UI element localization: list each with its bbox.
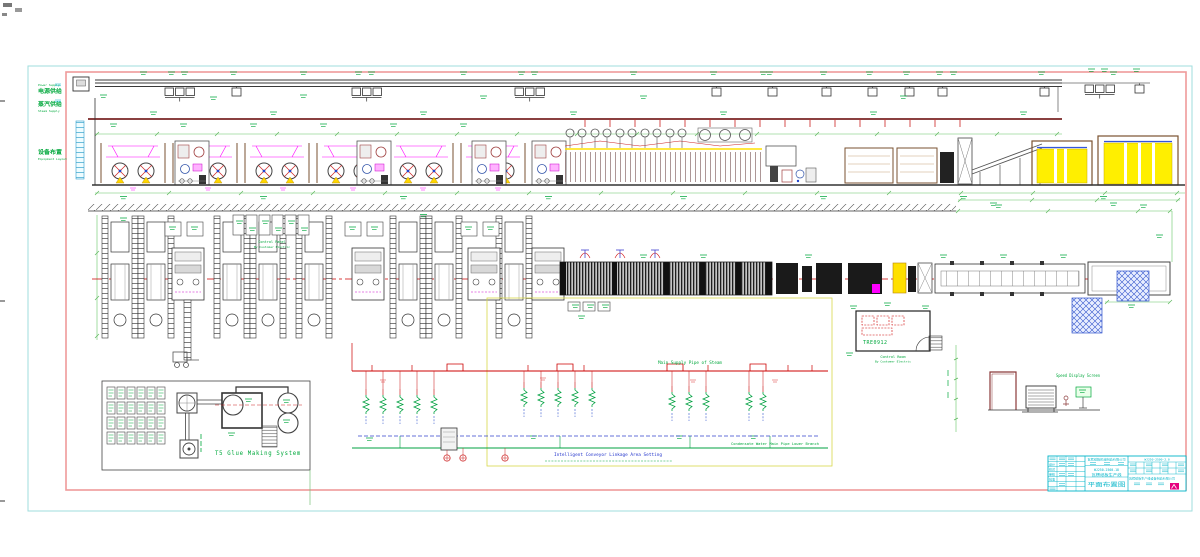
product-name: 瓦楞纸板生产线 — [1092, 472, 1123, 477]
check-label: 校对 — [1049, 467, 1055, 472]
control-panel-caption-2: By Customer Electric — [254, 245, 290, 249]
elevation-bridge — [565, 128, 762, 182]
control-room: TRE0912 Control Room By Customer Electri… — [846, 303, 942, 364]
condensate-main-label: Condensate Water Main Pipe Lower Branch — [731, 441, 819, 446]
speed-screen-machine — [1022, 386, 1058, 412]
footer-company: 瓦楞纸板生产线设备制造有限公司 — [1129, 477, 1175, 481]
sheet-title: 平面布置图 — [1088, 481, 1127, 489]
control-room-caption: Control Room — [880, 355, 905, 359]
model-number: WJ250-2500-18 — [1094, 468, 1119, 472]
sheet-fold-marks — [0, 3, 22, 502]
glue-system-title: T5 Glue Making System — [215, 449, 301, 457]
drawing-number: WJ250-2500-2.0 — [1144, 458, 1169, 462]
steam-supply-label-cn: 蒸汽供给 — [37, 100, 63, 108]
control-panel-caption: Control Panel — [258, 240, 285, 244]
stairs — [262, 426, 277, 447]
elevation-dimensions — [92, 185, 1185, 205]
operator-figure — [1063, 396, 1069, 406]
plan-roll-stands — [102, 216, 564, 360]
title-block: 设计 校对 审核 批准 瓦楞纸箱机械制造有限公司 WJ250-2500-18 瓦… — [1048, 456, 1186, 491]
elevation-dry-end — [766, 136, 1178, 185]
equipment-layout-label-en: Equipment Layout — [38, 157, 67, 161]
plan-view: Control Panel By Customer Electric — [88, 204, 1172, 364]
glue-tank — [222, 387, 288, 435]
starch-bag-grid — [107, 387, 165, 444]
equipment-layout-label-cn: 设备布置 — [38, 148, 63, 156]
design-label: 设计 — [1049, 462, 1055, 467]
condensate-pump-set — [441, 428, 508, 461]
power-busbar — [73, 69, 1150, 112]
audit-label: 审核 — [1049, 472, 1055, 477]
plan-double-facer — [560, 250, 772, 318]
speed-screen-label: Speed Display Screen — [1056, 373, 1101, 378]
elevation-view — [73, 69, 1185, 205]
power-supply-label-cn: 电源供给 — [38, 87, 63, 95]
company-logo — [1170, 483, 1179, 490]
approve-label: 批准 — [1049, 477, 1055, 482]
glue-pump — [180, 440, 198, 458]
linkage-note: Intelligent Conveyor Linkage Area Settin… — [554, 452, 662, 457]
company-name: 瓦楞纸箱机械制造有限公司 — [1088, 458, 1126, 462]
glue-making-system: T5 Glue Making System — [102, 381, 310, 505]
pallet-area-1 — [1072, 298, 1102, 333]
elevation-machinery — [95, 98, 566, 185]
steam-main-label: Main Supply Pipe of Steam — [658, 360, 722, 365]
glue-storage-tanks — [278, 393, 298, 433]
control-room-note: By Customer Electric — [875, 360, 911, 364]
control-room-code: TRE0912 — [863, 340, 888, 346]
power-supply-label-en: Power Supply — [38, 83, 60, 87]
speed-display-area: Speed Display Screen — [948, 345, 1101, 432]
margin-labels: Power Supply 电源供给 蒸汽供给 Steam Supply 设备布置… — [37, 83, 67, 161]
pallet-area-2 — [1117, 271, 1149, 301]
display-stand — [1076, 387, 1091, 408]
drawing-sheet: Power Supply 电源供给 蒸汽供给 Steam Supply 设备布置… — [0, 0, 1200, 557]
glue-mixer — [177, 393, 197, 413]
cad-drawing-canvas: Power Supply 电源供给 蒸汽供给 Steam Supply 设备布置… — [0, 0, 1200, 557]
plan-slitter-section — [776, 263, 932, 294]
steam-supply-label-en: Steam Supply — [38, 109, 60, 113]
